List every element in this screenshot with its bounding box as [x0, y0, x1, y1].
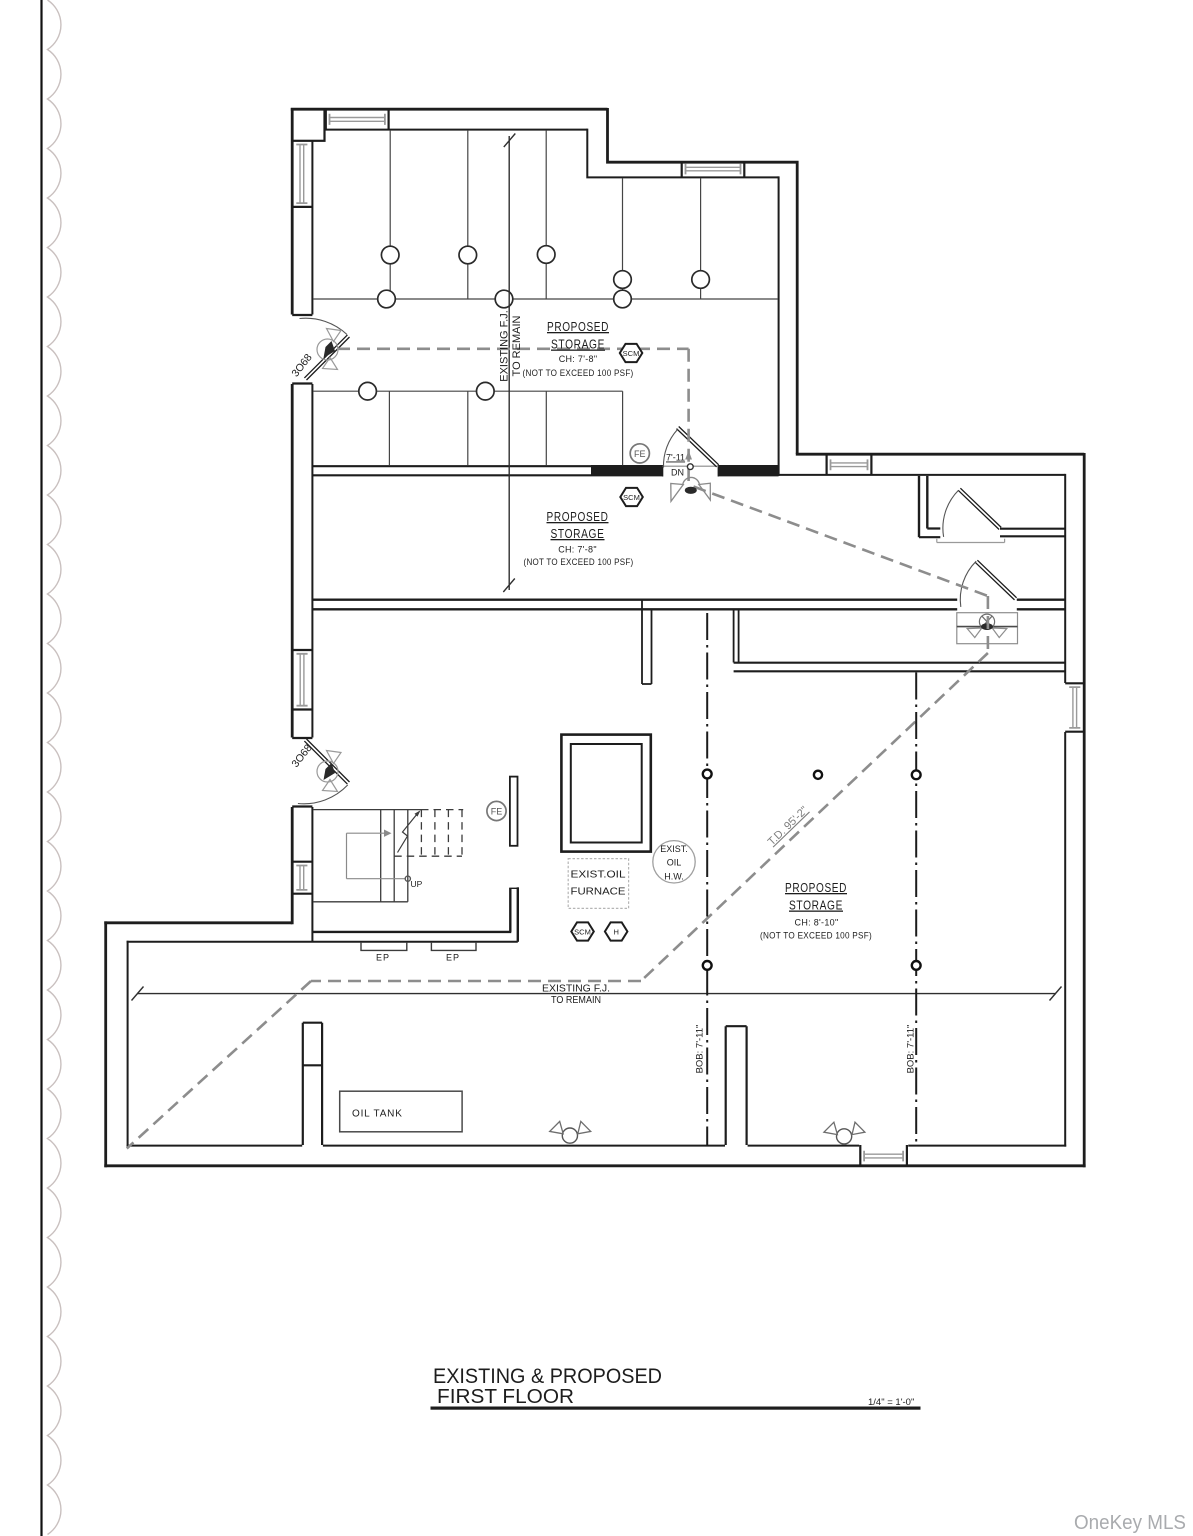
svg-text:EP: EP [376, 953, 390, 963]
svg-text:UP: UP [411, 879, 423, 889]
svg-text:EXISTING F.J.: EXISTING F.J. [542, 984, 610, 995]
svg-text:STORAGE: STORAGE [789, 898, 843, 913]
svg-text:(NOT TO EXCEED 100 PSF): (NOT TO EXCEED 100 PSF) [760, 931, 872, 941]
svg-text:FE: FE [491, 806, 503, 816]
svg-text:CH: 8'-10": CH: 8'-10" [795, 918, 839, 928]
svg-text:CH: 7'-8": CH: 7'-8" [559, 354, 598, 364]
svg-text:EXIST.: EXIST. [660, 844, 688, 854]
svg-text:BOB: 7'-11": BOB: 7'-11" [906, 1025, 917, 1074]
svg-text:EP: EP [446, 953, 460, 963]
svg-text:BOB: 7'-11": BOB: 7'-11" [695, 1025, 706, 1074]
svg-text:(NOT TO EXCEED 100 PSF): (NOT TO EXCEED 100 PSF) [523, 368, 634, 378]
svg-text:OIL: OIL [667, 858, 682, 868]
svg-text:TO REMAIN: TO REMAIN [551, 995, 601, 1006]
svg-text:DN: DN [671, 468, 684, 478]
svg-text:EXISTING F.J.: EXISTING F.J. [499, 310, 511, 382]
svg-text:SCM: SCM [623, 349, 640, 358]
svg-text:EXIST.OIL: EXIST.OIL [571, 870, 627, 881]
svg-text:STORAGE: STORAGE [551, 337, 605, 352]
svg-text:1/4" = 1'-0": 1/4" = 1'-0" [868, 1397, 914, 1408]
svg-text:CH: 7'-8": CH: 7'-8" [558, 545, 597, 555]
svg-text:SCM: SCM [574, 928, 591, 937]
svg-text:TO REMAIN: TO REMAIN [511, 315, 523, 376]
svg-text:SCM: SCM [623, 493, 640, 502]
svg-text:STORAGE: STORAGE [551, 526, 605, 541]
svg-text:PROPOSED: PROPOSED [785, 880, 847, 895]
svg-text:OIL TANK: OIL TANK [352, 1109, 403, 1120]
svg-text:FE: FE [634, 449, 646, 459]
svg-text:7'-11: 7'-11 [666, 453, 685, 463]
svg-text:H.W.: H.W. [664, 872, 684, 882]
svg-text:H: H [613, 928, 618, 937]
svg-text:PROPOSED: PROPOSED [547, 319, 609, 334]
svg-text:OneKey MLS: OneKey MLS [1074, 1512, 1186, 1534]
svg-text:EXISTING & PROPOSED: EXISTING & PROPOSED [433, 1365, 662, 1388]
svg-text:(NOT TO EXCEED 100 PSF): (NOT TO EXCEED 100 PSF) [524, 557, 634, 567]
svg-text:PROPOSED: PROPOSED [547, 509, 609, 524]
svg-text:FURNACE: FURNACE [571, 887, 626, 898]
svg-text:FIRST FLOOR: FIRST FLOOR [437, 1386, 574, 1408]
